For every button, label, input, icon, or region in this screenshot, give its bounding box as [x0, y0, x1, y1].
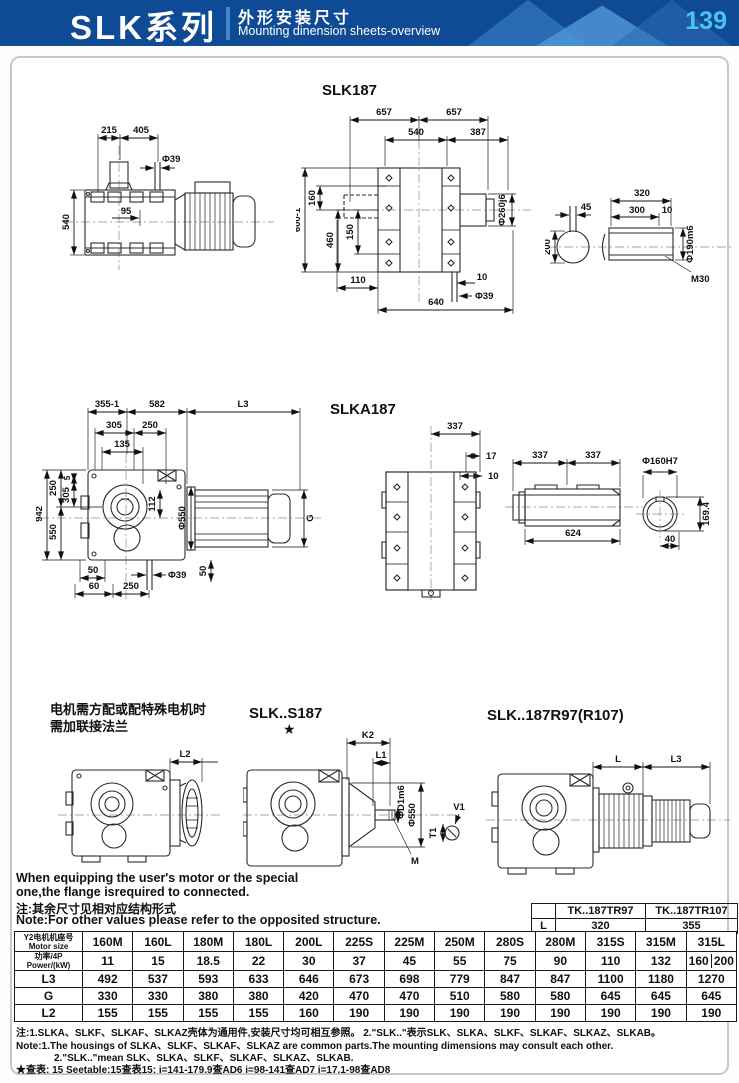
dim-label: 160: [307, 190, 318, 206]
dim-label: 215: [101, 125, 118, 136]
dim-label: 150: [345, 224, 356, 240]
dim-label: 40: [665, 534, 676, 545]
value-cell: 492: [83, 971, 133, 988]
value-cell: 132: [636, 952, 686, 971]
dim-label: 540: [408, 127, 424, 138]
drawing-title-s187: SLK..S187: [249, 705, 322, 722]
value-cell: 90: [535, 952, 585, 971]
value-cell: 75: [485, 952, 535, 971]
motor-size-col: 225M: [384, 932, 434, 952]
dim-label: L2: [179, 749, 190, 760]
flange-note-cn-line2: 需加联接法兰: [50, 718, 206, 735]
flange-note-en-line1: When equipping the user's motor or the s…: [16, 872, 298, 886]
dim-label: 657: [376, 107, 392, 118]
value-cell: 190: [686, 1005, 736, 1022]
value-cell: 330: [83, 988, 133, 1005]
header-subtitle-en: Mounting dinension sheets-overview: [238, 24, 440, 38]
value-cell: 1100: [585, 971, 635, 988]
value-cell: 645: [636, 988, 686, 1005]
value-cell: 22: [233, 952, 283, 971]
dim-label: Φ39: [162, 154, 180, 165]
flange-note-cn: 电机需方配或配特殊电机时 需加联接法兰: [50, 701, 206, 735]
value-cell: 155: [83, 1005, 133, 1022]
dim-label: V1: [453, 802, 465, 813]
main-table: Y2电机机座号Motor size160M160L180M180L200L225…: [14, 931, 737, 1022]
value-cell: 330: [133, 988, 183, 1005]
value-cell: 11: [83, 952, 133, 971]
tk-corner-cell: [532, 904, 556, 919]
slk187-front-view-drawing: 657 657 540 387 Φ260j6 600-1 160 460 150…: [296, 90, 551, 320]
value-cell: 510: [435, 988, 485, 1005]
value-cell: 580: [485, 988, 535, 1005]
dim-label: 405: [133, 125, 150, 136]
dim-label: 624: [565, 528, 582, 539]
value-cell: 37: [334, 952, 384, 971]
dim-label: 320: [634, 188, 650, 199]
value-cell: 160: [284, 1005, 334, 1022]
drawing-title-slka187: SLKA187: [330, 401, 396, 418]
dim-label: 600-1: [296, 207, 303, 232]
flange-note-en-line2: one,the flange isrequired to connected.: [16, 886, 298, 900]
value-cell: 633: [233, 971, 283, 988]
value-cell: 646: [284, 971, 334, 988]
motor-size-col: 315M: [636, 932, 686, 952]
dim-label: 5: [63, 475, 72, 480]
tk-header: TK..187TR107: [646, 904, 738, 919]
dim-label: 60: [89, 581, 100, 592]
row-label: L3: [15, 971, 83, 988]
value-cell: 645: [585, 988, 635, 1005]
value-cell: 155: [133, 1005, 183, 1022]
value-cell: 645: [686, 988, 736, 1005]
dim-label: Φ39: [168, 570, 186, 581]
flange-note-en: When equipping the user's motor or the s…: [16, 872, 298, 899]
dim-label: Φ190m6: [685, 225, 696, 262]
dim-label: Φ160H7: [642, 456, 678, 467]
value-cell: 190: [485, 1005, 535, 1022]
value-cell: 380: [183, 988, 233, 1005]
dim-label: 50: [88, 565, 99, 576]
dim-label: 640: [428, 297, 444, 308]
tk-dimension-table: TK..187TR97 TK..187TR107 L 320 355: [531, 903, 738, 934]
value-cell: 698: [384, 971, 434, 988]
dim-label: 540: [62, 214, 72, 230]
value-cell: 190: [384, 1005, 434, 1022]
motor-size-col: 225S: [334, 932, 384, 952]
row-label: L2: [15, 1005, 83, 1022]
value-cell: 847: [535, 971, 585, 988]
dim-label: L3: [670, 754, 681, 765]
row-label: Y2电机机座号Motor size: [15, 932, 83, 952]
value-cell: 190: [435, 1005, 485, 1022]
dim-label: 135: [114, 439, 131, 450]
dim-label: L1: [375, 750, 387, 761]
value-cell: 155: [183, 1005, 233, 1022]
row-label: 功率/4PPower/(kW): [15, 952, 83, 971]
value-cell: 190: [535, 1005, 585, 1022]
value-cell: 470: [334, 988, 384, 1005]
motor-size-col: 200L: [284, 932, 334, 952]
value-cell: 1270: [686, 971, 736, 988]
dim-label: 942: [36, 506, 45, 522]
dim-label: 387: [470, 127, 486, 138]
value-cell: 110: [585, 952, 635, 971]
motor-size-col: 315S: [585, 932, 635, 952]
flange-version-drawing: L2: [52, 736, 274, 866]
slka187-front-view-drawing: 337 17 10: [358, 418, 508, 603]
value-cell: 470: [384, 988, 434, 1005]
dim-label: 250: [123, 581, 139, 592]
value-cell: 30: [284, 952, 334, 971]
dim-label: Φ550: [407, 803, 418, 827]
dim-label: 45: [581, 202, 592, 213]
motor-size-col: 315L: [686, 932, 736, 952]
dim-label: 657: [446, 107, 462, 118]
dim-label: Φ39: [475, 291, 493, 302]
dim-label: T1: [428, 827, 439, 839]
slka187-bore-drawing: Φ160H7 169.4 40: [622, 450, 739, 562]
dim-label: 110: [350, 275, 365, 286]
dim-label: 10: [477, 272, 488, 283]
flange-note-cn-line1: 电机需方配或配特殊电机时: [50, 701, 206, 718]
dim-label: 250: [142, 420, 158, 431]
slka187-side-view-drawing: 355-1 582 L3 305 250 135 Φ550 112 G 942 …: [36, 392, 328, 607]
dim-label: 112: [147, 496, 158, 511]
value-cell: 160200: [686, 952, 736, 971]
value-cell: 593: [183, 971, 233, 988]
dim-label: 355-1: [95, 399, 120, 410]
value-cell: 190: [636, 1005, 686, 1022]
series-title: SLK系列: [70, 1, 217, 46]
s187-version-drawing: K2 L1 ΦD1m6 Φ550 M V1 T1: [243, 726, 490, 880]
page-number: 139: [685, 7, 727, 36]
dim-label: K2: [362, 730, 374, 741]
dim-label: L: [615, 754, 621, 765]
drawing-title-r97: SLK..187R97(R107): [487, 707, 624, 724]
motor-size-col: 160M: [83, 932, 133, 952]
dim-label: 17: [486, 451, 497, 462]
value-cell: 155: [233, 1005, 283, 1022]
dim-label: M30: [691, 274, 709, 285]
dim-label: Φ260j6: [497, 194, 508, 226]
value-cell: 537: [133, 971, 183, 988]
dim-label: 169.4: [701, 501, 712, 525]
value-cell: 45: [384, 952, 434, 971]
dim-label: Φ550: [177, 506, 188, 530]
dim-label: 250: [48, 480, 59, 496]
value-cell: 55: [435, 952, 485, 971]
slk187-shaft-end-drawing: 45 200 320 300 10 Φ190m6 M30: [545, 166, 735, 306]
dim-label: L3: [237, 399, 248, 410]
dim-label: 305: [61, 486, 72, 503]
value-cell: 190: [334, 1005, 384, 1022]
value-cell: 380: [233, 988, 283, 1005]
dim-label: 337: [585, 450, 601, 461]
motor-size-col: 160L: [133, 932, 183, 952]
dim-label: 305: [106, 420, 123, 431]
r97-version-drawing: L L3: [468, 746, 735, 892]
dim-label: 10: [662, 205, 673, 216]
dim-label: 337: [532, 450, 548, 461]
motor-size-col: 180L: [233, 932, 283, 952]
value-cell: 779: [435, 971, 485, 988]
value-cell: 15: [133, 952, 183, 971]
dim-label: 200: [545, 239, 553, 255]
main-table-body: Y2电机机座号Motor size160M160L180M180L200L225…: [15, 932, 737, 1022]
dim-label: 50: [198, 566, 209, 577]
value-cell: 580: [535, 988, 585, 1005]
value-cell: 18.5: [183, 952, 233, 971]
dim-label: 460: [325, 232, 336, 248]
dim-label: 95: [121, 206, 132, 217]
dim-label: ΦD1m6: [396, 785, 407, 819]
value-cell: 190: [585, 1005, 635, 1022]
dim-label: 550: [48, 524, 59, 540]
dim-label: 337: [447, 421, 463, 432]
value-cell: 420: [284, 988, 334, 1005]
dim-label: M: [411, 856, 419, 867]
page-header: SLK系列 外形安装尺寸 Mounting dinension sheets-o…: [0, 0, 739, 46]
dim-label: 300: [629, 205, 645, 216]
header-divider: [226, 7, 230, 40]
dim-label: G: [305, 514, 316, 521]
tk-header: TK..187TR97: [556, 904, 646, 919]
dim-label: 10: [488, 471, 499, 482]
other-values-note-en: Note:For other values please refer to th…: [16, 914, 381, 928]
motor-size-col: 180M: [183, 932, 233, 952]
value-cell: 673: [334, 971, 384, 988]
row-label: G: [15, 988, 83, 1005]
motor-size-col: 280S: [485, 932, 535, 952]
value-cell: 1180: [636, 971, 686, 988]
dim-label: 582: [149, 399, 165, 410]
footnote-line4: ★查表: 15 Seetable:15查表15: i=141-179.9查AD6…: [16, 1061, 390, 1076]
value-cell: 847: [485, 971, 535, 988]
motor-size-col: 280M: [535, 932, 585, 952]
motor-size-col: 250M: [435, 932, 485, 952]
slk187-side-view-drawing: 215 405 Φ39 95 540: [62, 110, 277, 280]
